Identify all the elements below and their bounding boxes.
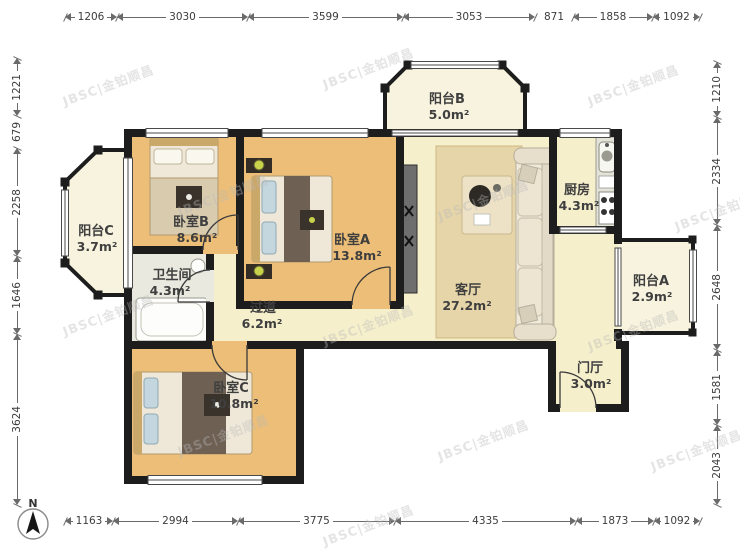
dim-left-1: 679 [10, 116, 24, 148]
dim-bottom-3: 4335 [395, 514, 576, 528]
window-balcony-c-outer [62, 190, 69, 256]
dim-left-3: 1646 [10, 256, 24, 334]
stove [599, 192, 615, 224]
area-balcony-b: 5.0m² [429, 107, 470, 122]
dim-value: 871 [541, 12, 567, 23]
label-corridor: 过道 [250, 300, 276, 316]
window-bedroom-b [146, 129, 228, 138]
coffee-table [462, 176, 512, 234]
dim-top-2: 3599 [248, 10, 403, 24]
floor-plan-image: 阳台B 5.0m² 厨房 4.3m² 阳台C 3.7m² 卧室B 8.6m² 卫… [0, 0, 740, 555]
dim-top-1: 3030 [117, 10, 248, 24]
dim-value: 1858 [597, 12, 630, 23]
dim-bottom-1: 2994 [113, 514, 238, 528]
dim-value: 2258 [12, 186, 23, 219]
dim-value: 1221 [12, 71, 23, 104]
dim-top-5: 1858 [573, 10, 653, 24]
label-bathroom: 卫生间 [152, 267, 191, 283]
dim-left-2: 2258 [10, 148, 24, 256]
label-bedroom-a: 卧室A [334, 232, 370, 248]
dim-value: 679 [12, 119, 23, 145]
dim-bottom-0: 1163 [65, 514, 113, 528]
dim-value: 1581 [712, 371, 723, 404]
dim-left-0: 1221 [10, 58, 24, 116]
dim-value: 2994 [159, 516, 192, 527]
dim-bottom-5: 1092 [654, 514, 700, 528]
label-bedroom-c: 卧室C [213, 380, 249, 396]
area-living: 27.2m² [442, 298, 491, 313]
dim-value: 1646 [12, 279, 23, 312]
label-living: 客厅 [455, 282, 481, 298]
area-balcony-c: 3.7m² [77, 239, 118, 254]
label-balcony-b: 阳台B [429, 91, 465, 107]
slider-balcony-b [392, 130, 518, 136]
dim-right-0: 1210 [710, 62, 724, 117]
dim-top-0: 1206 [65, 10, 117, 24]
dim-bottom-4: 1873 [576, 514, 654, 528]
room-corridor-strip [210, 250, 240, 345]
area-entry-hall: 3.0m² [571, 376, 612, 391]
slider-balcony-a [615, 248, 621, 326]
dim-value: 2334 [712, 155, 723, 188]
area-balcony-a: 2.9m² [632, 289, 673, 304]
dim-value: 1163 [73, 516, 106, 527]
dim-value: 1092 [660, 12, 693, 23]
dim-value: 2043 [712, 449, 723, 482]
dim-value: 3030 [166, 12, 199, 23]
dim-value: 1206 [75, 12, 108, 23]
area-corridor: 6.2m² [242, 316, 283, 331]
dim-top-3: 3053 [403, 10, 535, 24]
floor-plan-svg: 阳台B 5.0m² 厨房 4.3m² 阳台C 3.7m² 卧室B 8.6m² 卫… [0, 0, 740, 555]
dim-value: 3599 [309, 12, 342, 23]
dim-left-4: 3624 [10, 334, 24, 505]
dim-value: 4335 [469, 516, 502, 527]
dim-value: 3775 [300, 516, 333, 527]
dim-right-4: 2043 [710, 425, 724, 505]
label-bedroom-b: 卧室B [173, 214, 209, 230]
dim-right-3: 1581 [710, 350, 724, 425]
window-balcony-c-wall [124, 158, 133, 288]
dim-value: 3624 [12, 403, 23, 436]
dim-top-4: 871 [535, 10, 573, 24]
window-kitchen [560, 129, 610, 138]
label-entry-hall: 门厅 [577, 360, 603, 376]
area-bedroom-b: 8.6m² [177, 230, 218, 245]
window-bedroom-c [148, 476, 262, 485]
dim-value: 2648 [712, 271, 723, 304]
label-kitchen: 厨房 [564, 182, 590, 198]
area-kitchen: 4.3m² [559, 198, 600, 213]
label-balcony-c: 阳台C [78, 223, 114, 239]
area-bedroom-c: 10.8m² [209, 396, 258, 411]
dim-value: 3053 [453, 12, 486, 23]
bed-a [246, 158, 332, 279]
dim-value: 1210 [712, 73, 723, 106]
dim-right-2: 2648 [710, 225, 724, 350]
dim-top-6: 1092 [653, 10, 700, 24]
window-balcony-a [690, 250, 697, 322]
area-bedroom-a: 13.8m² [332, 248, 381, 263]
north-label: N [28, 497, 37, 510]
window-balcony-b [411, 62, 499, 69]
area-bathroom: 4.3m² [150, 283, 191, 298]
window-bedroom-a [262, 129, 368, 138]
dim-right-1: 2334 [710, 117, 724, 225]
label-balcony-a: 阳台A [633, 273, 669, 289]
dim-value: 1092 [661, 516, 694, 527]
dim-bottom-2: 3775 [238, 514, 395, 528]
slider-kitchen [560, 227, 606, 233]
dim-value: 1873 [599, 516, 632, 527]
